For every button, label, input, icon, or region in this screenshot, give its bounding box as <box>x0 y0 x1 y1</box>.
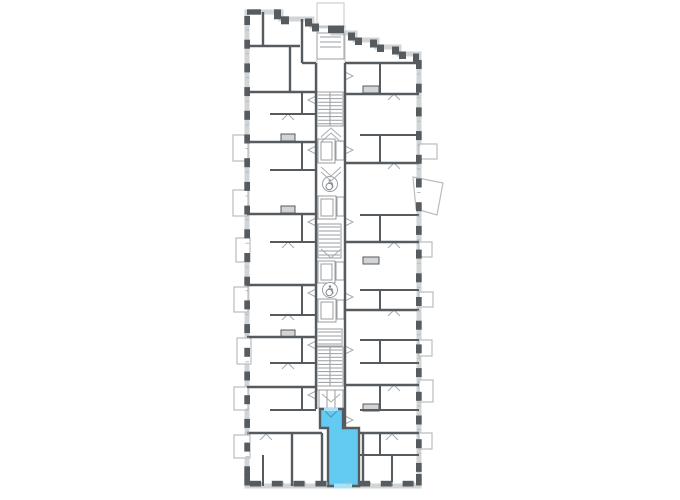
facade-panel <box>416 297 422 306</box>
shaft-block <box>281 134 295 141</box>
floor-plan <box>0 0 680 500</box>
shaft-block <box>363 86 379 93</box>
facade-panel <box>403 481 414 487</box>
shaft-block <box>281 206 295 213</box>
facade-panel <box>244 158 250 167</box>
facade-panel <box>250 481 261 487</box>
facade-panel <box>244 395 250 404</box>
facade-panel <box>244 206 250 215</box>
facade-panel <box>244 348 250 357</box>
wheelchair-icon <box>329 285 332 288</box>
facade-panel <box>244 253 250 262</box>
facade-panel <box>294 481 305 487</box>
facade-panel <box>312 24 319 32</box>
facade-panel <box>416 368 422 377</box>
facade-panel <box>416 155 422 164</box>
highlighted-unit-window <box>324 408 338 411</box>
facade-panel <box>416 273 422 282</box>
shaft-block <box>363 257 379 264</box>
facade-panel <box>247 9 261 14</box>
floor-plan-svg <box>0 0 680 500</box>
facade-panel <box>272 481 283 487</box>
facade-panel <box>244 443 250 452</box>
facade-panel <box>244 87 250 96</box>
facade-panel <box>244 182 250 191</box>
facade-panel <box>416 131 422 140</box>
facade-panel <box>416 463 422 472</box>
facade-panel <box>348 33 355 41</box>
facade-panel <box>244 466 250 475</box>
facade-panel <box>244 300 250 309</box>
facade-panel <box>244 474 250 486</box>
facade-panel <box>244 63 250 72</box>
facade-panel <box>244 372 250 381</box>
facade-panel <box>244 277 250 286</box>
facade-panel <box>416 392 422 401</box>
facade-panel <box>416 474 422 486</box>
facade-panel <box>305 19 312 27</box>
facade-panel <box>416 439 422 448</box>
facade-panel <box>244 16 250 25</box>
facade-panel <box>416 226 422 235</box>
facade-panel <box>416 321 422 330</box>
facade-panel <box>359 481 370 487</box>
facade-panel <box>244 135 250 144</box>
facade-panel <box>355 38 362 46</box>
facade-panel <box>416 179 422 188</box>
facade-panel <box>416 250 422 259</box>
core-roof-outline <box>317 3 344 27</box>
facade-panel <box>416 344 422 353</box>
facade-panel <box>244 324 250 333</box>
facade-panel <box>244 111 250 120</box>
facade-panel <box>416 416 422 425</box>
facade-panel <box>413 54 419 64</box>
facade-panel <box>381 481 392 487</box>
facade-panel <box>315 481 326 487</box>
facade-panel <box>244 229 250 238</box>
facade-panel <box>281 16 289 24</box>
facade-panel <box>416 202 422 211</box>
facade-panel <box>244 419 250 428</box>
facade-panel <box>328 26 344 34</box>
facade-panel <box>392 47 399 55</box>
facade-panel <box>244 40 250 49</box>
highlighted-unit-window <box>334 484 352 489</box>
facade-panel <box>416 84 422 93</box>
facade-panel <box>399 52 406 60</box>
facade-panel <box>377 45 384 53</box>
facade-panel <box>274 9 281 19</box>
facade-panel <box>370 40 377 48</box>
facade-panel <box>416 107 422 116</box>
